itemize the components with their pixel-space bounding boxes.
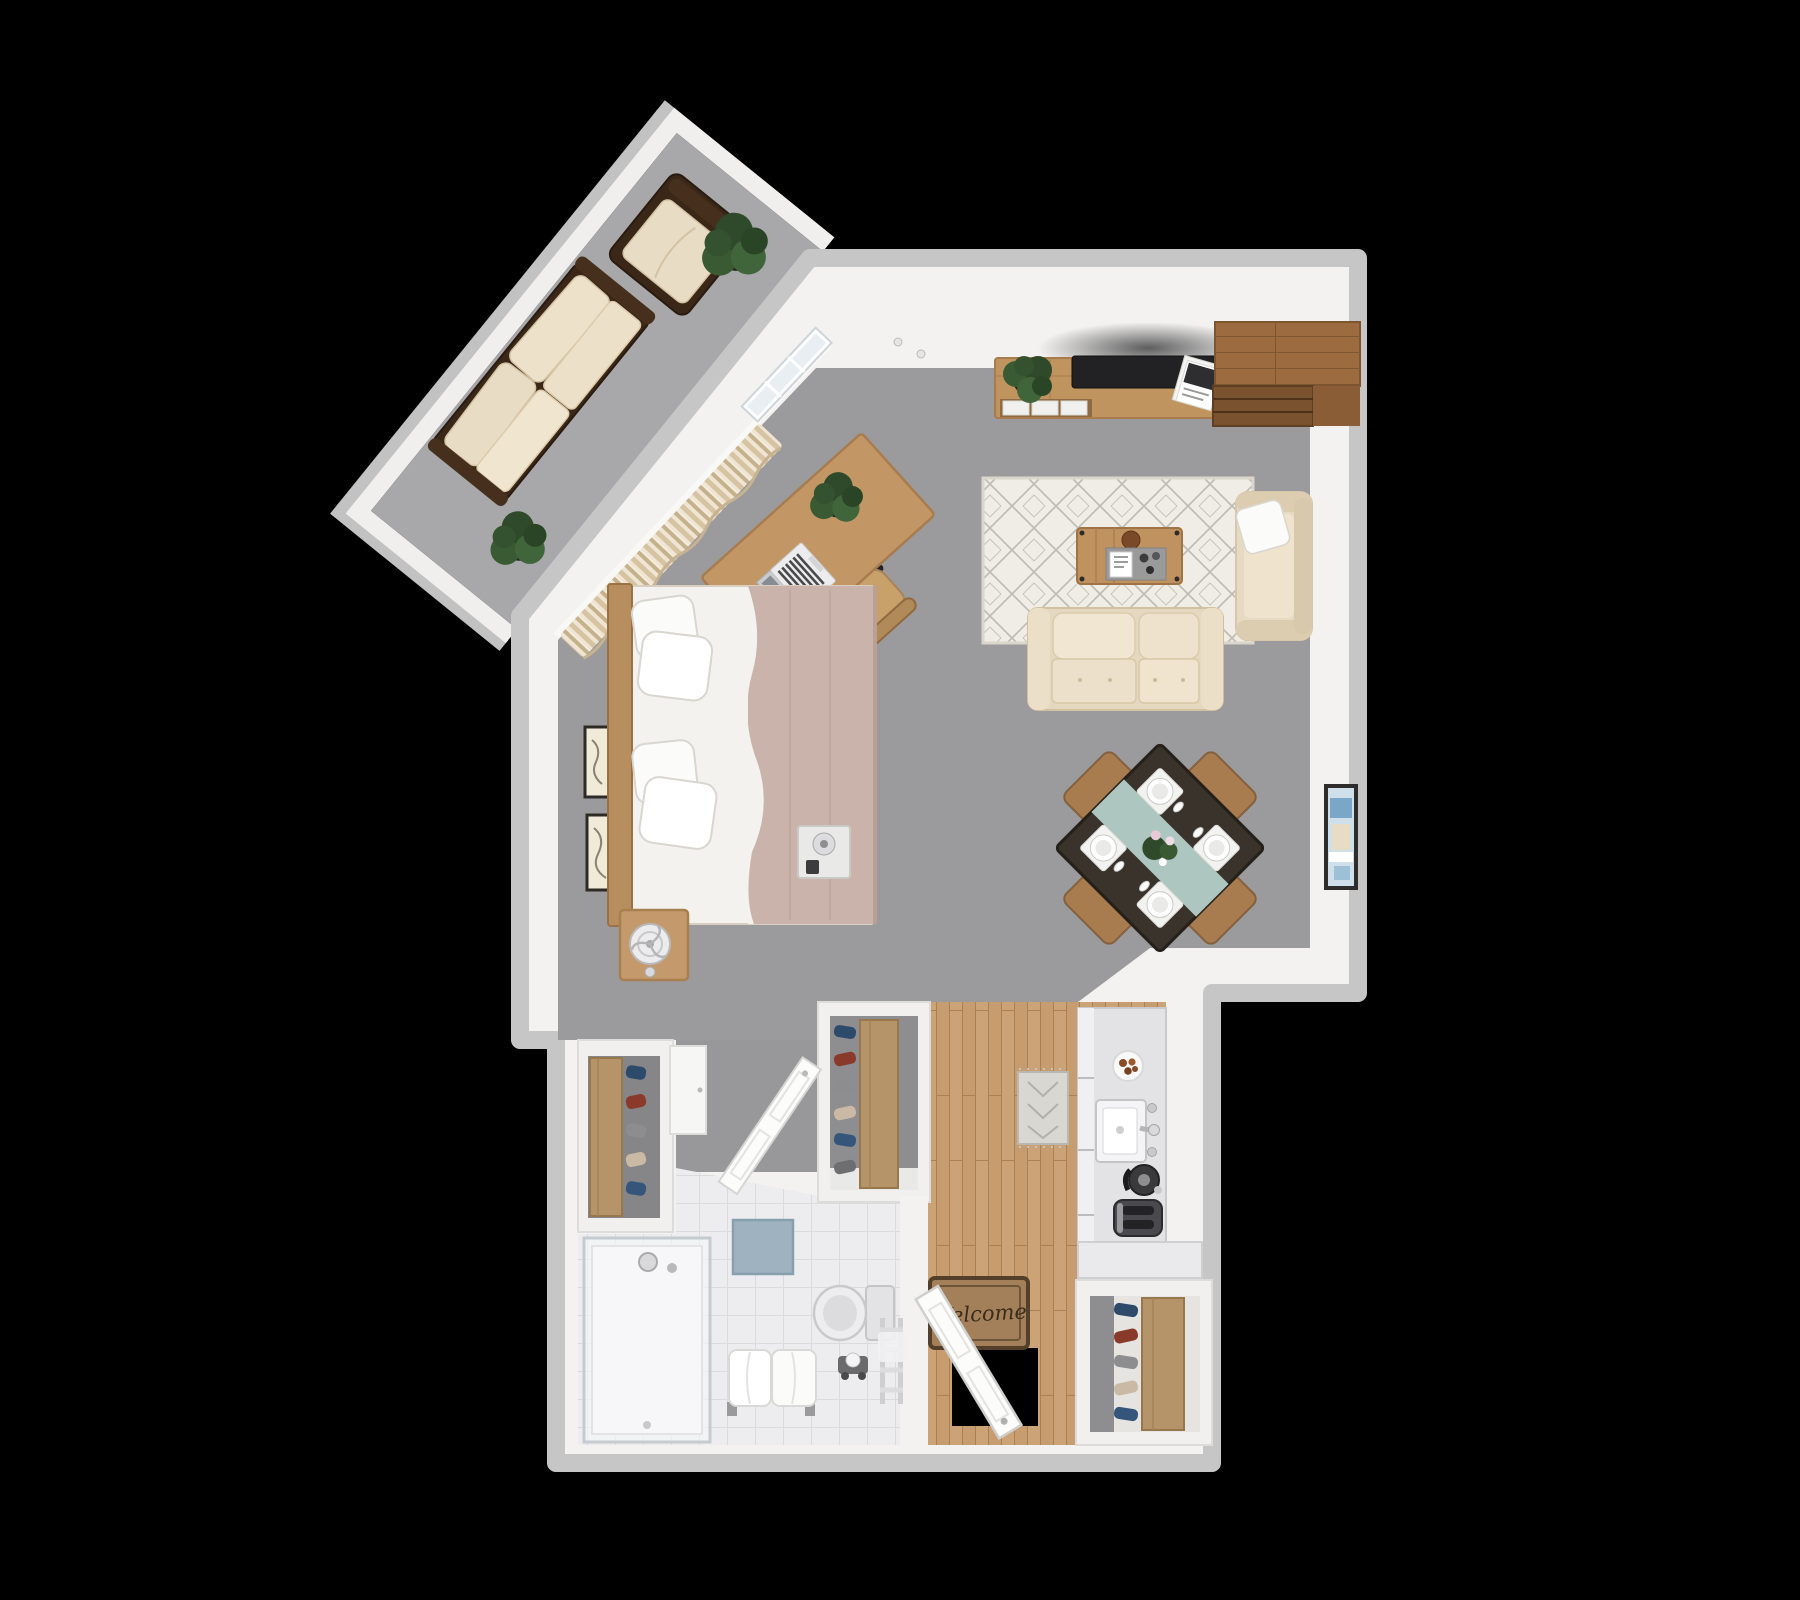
floorplan-render: 3D top-down floor plan render of a studi… [0,0,1800,1600]
decor-bowl [1122,531,1140,549]
accent-armchair [1235,492,1312,640]
closet-2 [818,1002,930,1202]
headboard [608,584,632,926]
floorplan-stage: 3D top-down floor plan render of a studi… [0,0,1800,1600]
bed [608,584,877,926]
nightstand [620,910,688,980]
coffee-table [1077,528,1182,584]
sprinkler-dot [917,350,925,358]
closet-1 [578,1040,673,1232]
shoe-shelf-2 [860,1020,898,1188]
sprinkler-dot [894,338,902,346]
bathroom-entry-wall [900,1196,928,1445]
closet-3 [1076,1280,1212,1445]
bedroom-area [585,584,877,980]
sofa [1028,608,1223,710]
bed-tray-speaker [798,826,850,878]
corner-wardrobe [1213,322,1360,426]
shower-head [639,1253,657,1271]
cabinet-handle [698,1088,703,1093]
kitchen-rug [1018,1068,1068,1148]
serving-tray [1106,548,1166,580]
kitchen-sink [1096,1100,1160,1162]
counter-return [1078,1242,1202,1278]
shower [584,1238,710,1442]
hanging-towel [878,1332,906,1362]
toaster [1114,1200,1162,1236]
shower-drain [643,1421,651,1429]
towel-ladder [878,1318,906,1404]
food-plate [1113,1051,1143,1081]
framed-wall-art [1324,784,1358,890]
bath-mat [733,1220,793,1274]
shoe-shelf-3 [1142,1298,1184,1430]
shoe-shelf-1 [590,1058,622,1216]
